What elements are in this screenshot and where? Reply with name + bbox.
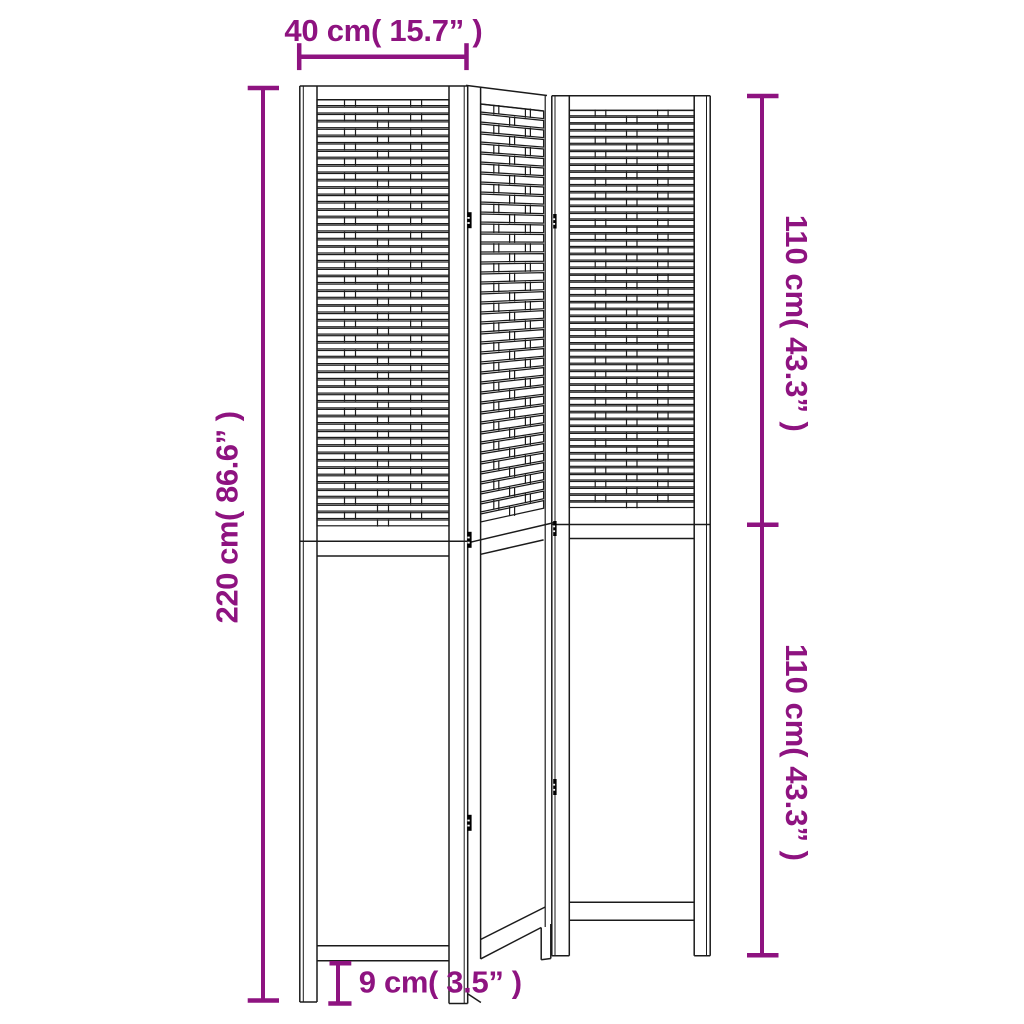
svg-text:220 cm( 86.6” ): 220 cm( 86.6” ) <box>210 411 245 623</box>
svg-text:9 cm( 3.5” ): 9 cm( 3.5” ) <box>359 965 522 1000</box>
svg-text:110 cm( 43.3” ): 110 cm( 43.3” ) <box>779 215 814 432</box>
svg-text:40 cm( 15.7” ): 40 cm( 15.7” ) <box>284 13 482 48</box>
svg-text:110 cm( 43.3” ): 110 cm( 43.3” ) <box>779 644 814 861</box>
